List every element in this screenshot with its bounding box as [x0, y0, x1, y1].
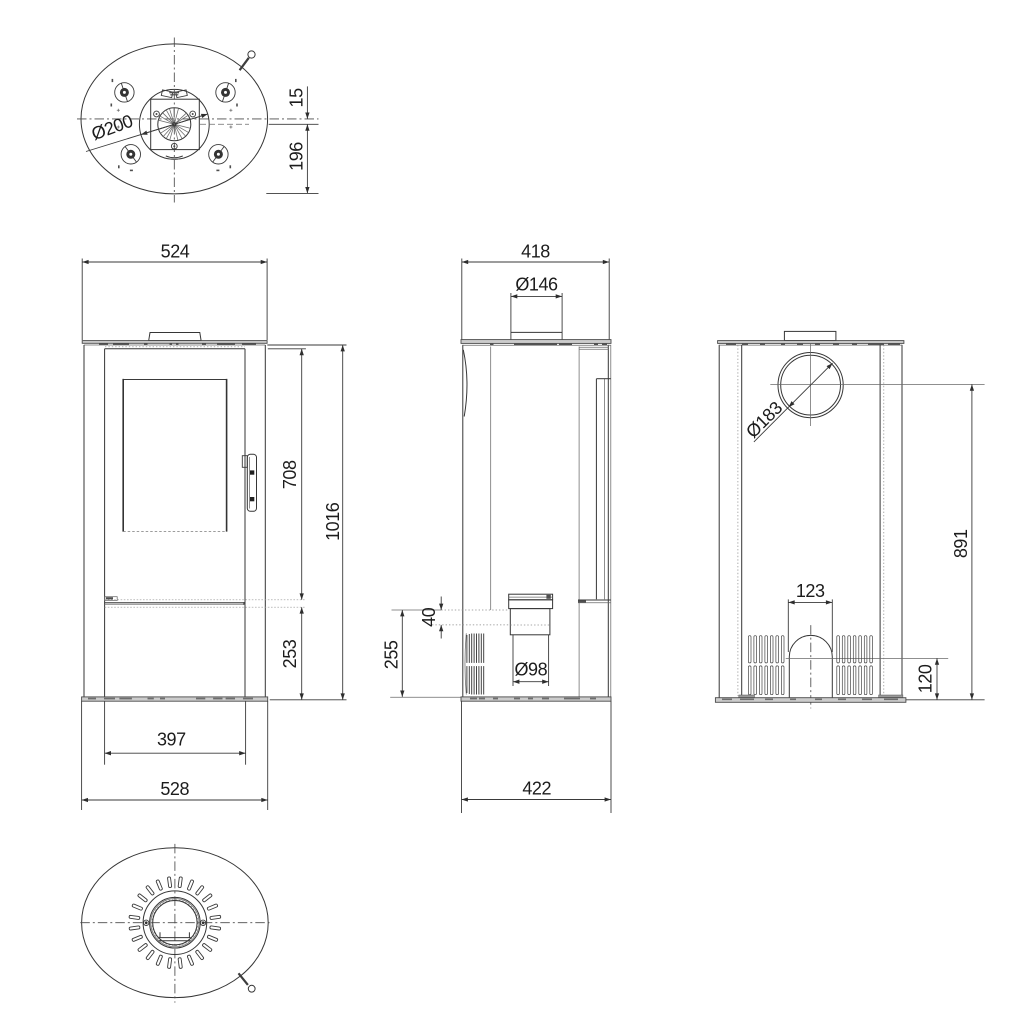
svg-text:1016: 1016 [323, 502, 343, 541]
svg-text:Ø146: Ø146 [515, 275, 558, 295]
svg-text:Ø98: Ø98 [514, 660, 547, 680]
svg-text:422: 422 [522, 779, 551, 799]
svg-text:418: 418 [521, 241, 550, 261]
svg-text:891: 891 [951, 529, 971, 558]
svg-text:15: 15 [287, 88, 307, 108]
svg-text:524: 524 [161, 241, 190, 261]
svg-text:397: 397 [157, 729, 186, 749]
svg-text:255: 255 [381, 640, 401, 669]
svg-text:708: 708 [280, 460, 300, 489]
svg-text:123: 123 [796, 581, 825, 601]
svg-text:528: 528 [160, 779, 189, 799]
svg-text:196: 196 [287, 142, 307, 171]
svg-text:120: 120 [916, 664, 936, 693]
svg-text:40: 40 [419, 607, 439, 627]
svg-text:253: 253 [280, 639, 300, 668]
